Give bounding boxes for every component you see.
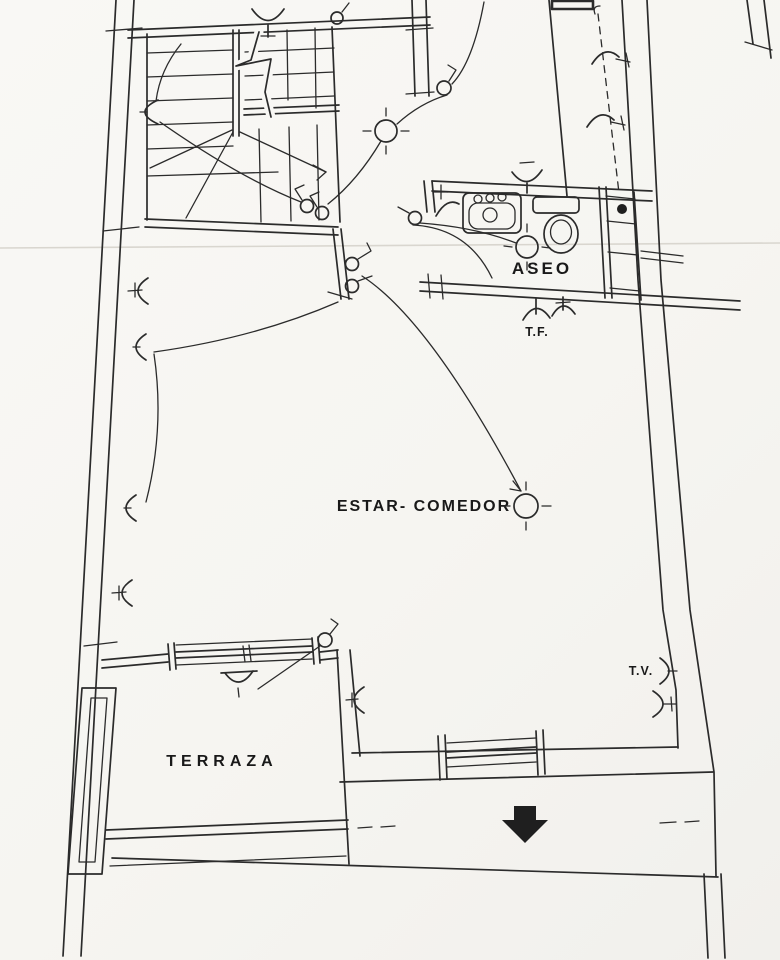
window-icon [438,730,545,780]
wall-light-icon [434,185,459,216]
floor-plan-drawing: ASEO T.F. ESTAR- COMEDOR [0,0,780,960]
stair-bottom-wall [145,219,338,227]
socket-icon [653,691,676,717]
door-leaf [146,354,158,502]
tf-label: T.F. [525,325,548,339]
scan-artifact-line [0,243,780,248]
aseo-top-wall [432,181,652,191]
ceiling-light-icon [363,108,409,154]
terraza-room: TERRAZA [68,619,364,874]
ceiling-lamp-icon [512,162,542,193]
sink [463,193,521,233]
ceiling-light-icon [502,482,551,530]
wire-to-living-light [362,276,521,491]
door-arc [452,2,484,84]
socket-icon [523,299,550,320]
switch-icon [437,65,456,95]
left-wall-lights [112,278,338,606]
switch-icon [318,619,338,647]
wall-light-icon [133,334,146,360]
switch-icon [346,276,373,293]
wall-light-icon [128,278,148,304]
estar-comedor-label: ESTAR- COMEDOR [337,498,511,515]
wire-arc [397,95,447,124]
stair-wall-light-icon [140,100,158,124]
staircase [128,17,430,235]
wall-light-icon [587,115,625,130]
aseo-bottom-wall [420,282,740,301]
window-icon [168,637,320,670]
switch-icon [346,243,372,271]
stair-dashed-line [598,14,619,193]
tf-outlets: T.F. [523,297,575,339]
tv-label: T.V. [629,664,653,678]
entrance-arrow-icon [502,806,548,843]
wall-light-icon [112,580,132,606]
wire-arc [328,141,381,204]
door-arc [154,302,338,352]
planter [68,688,116,874]
switch-icon [295,185,314,213]
stair-top-wall-inner [128,25,430,38]
aseo-room: ASEO [398,162,740,310]
corridor [549,0,630,196]
ceiling-lamp-icon [221,671,257,697]
terraza-label: TERRAZA [166,753,277,770]
switch-icon [398,207,422,225]
stair-break-line-mask [236,32,271,117]
dashed-line-curl [594,6,600,14]
tap-icon [486,194,494,202]
lintel [552,1,593,9]
aseo-label: ASEO [512,259,572,278]
tv-outlets: T.V. [629,658,677,717]
drain-icon [483,208,497,222]
outer-walls [63,0,772,958]
tap-icon [474,195,482,203]
wire-arc [160,122,301,202]
wall-light-icon [124,495,136,521]
floor-plan-scan: ASEO T.F. ESTAR- COMEDOR [0,0,780,960]
drain-dot-icon [617,204,627,214]
stair-top-wall [128,17,430,30]
shaft [606,192,683,300]
